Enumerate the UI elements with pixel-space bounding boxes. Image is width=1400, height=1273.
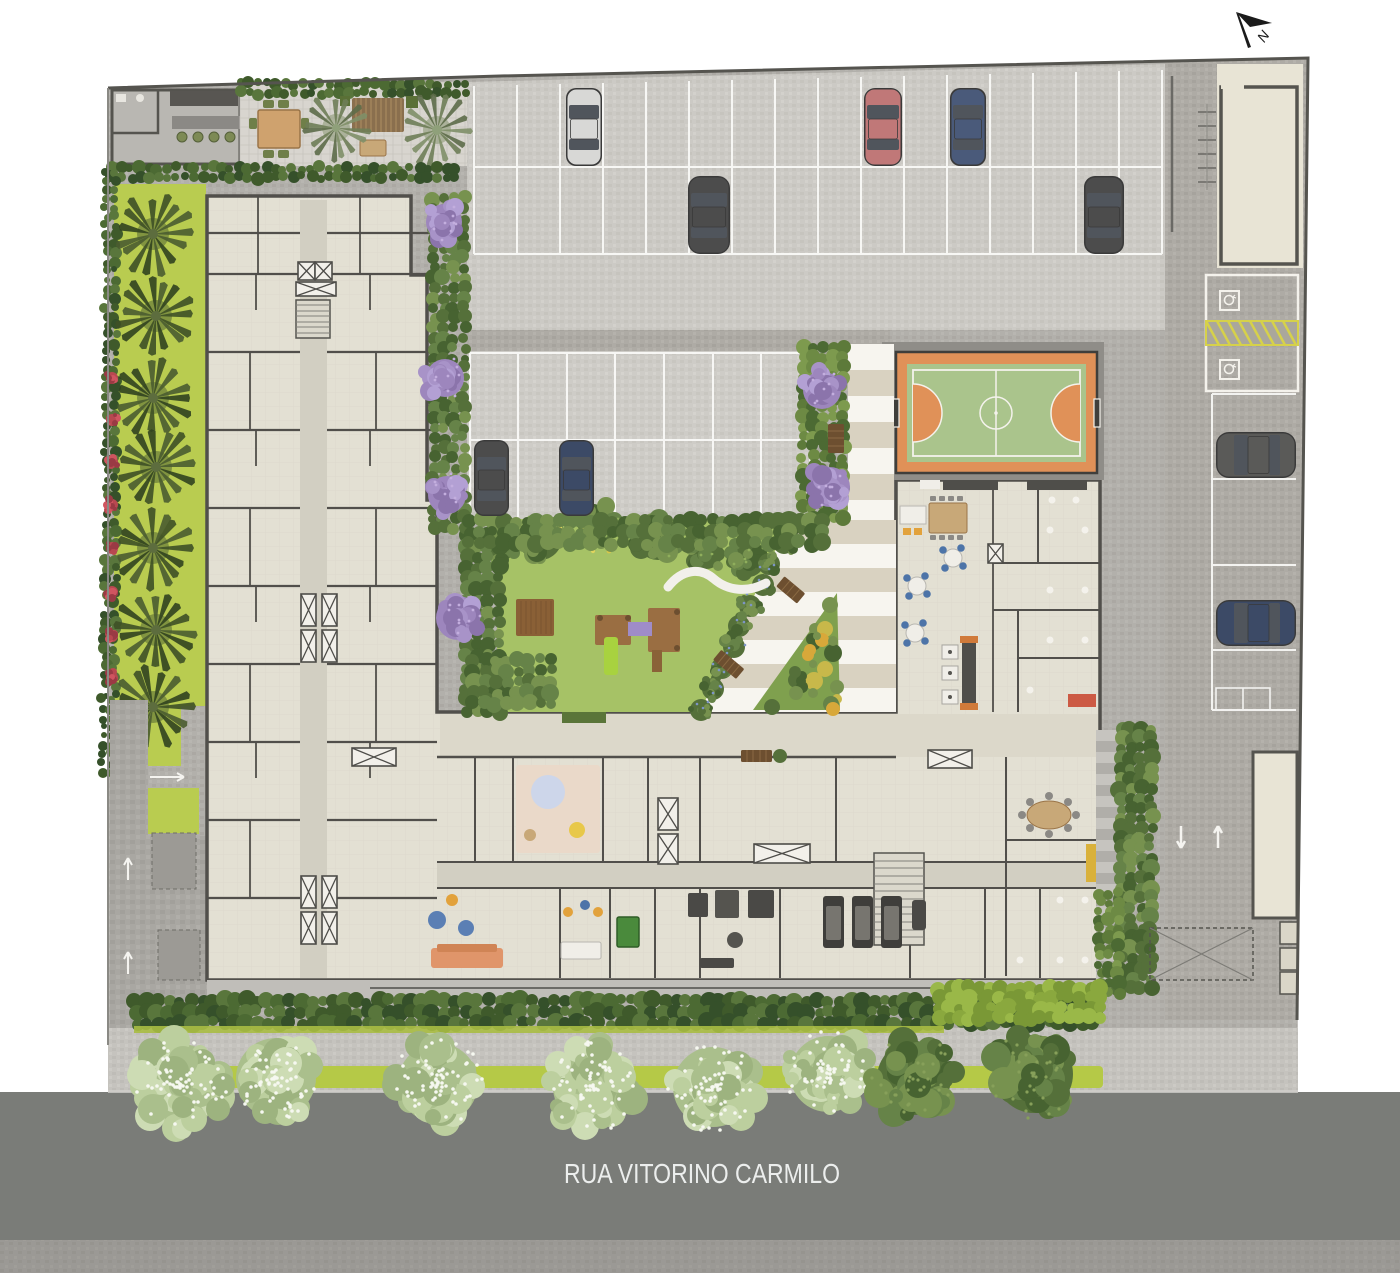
svg-text:RUA VITORINO CARMILO: RUA VITORINO CARMILO <box>564 1158 840 1189</box>
